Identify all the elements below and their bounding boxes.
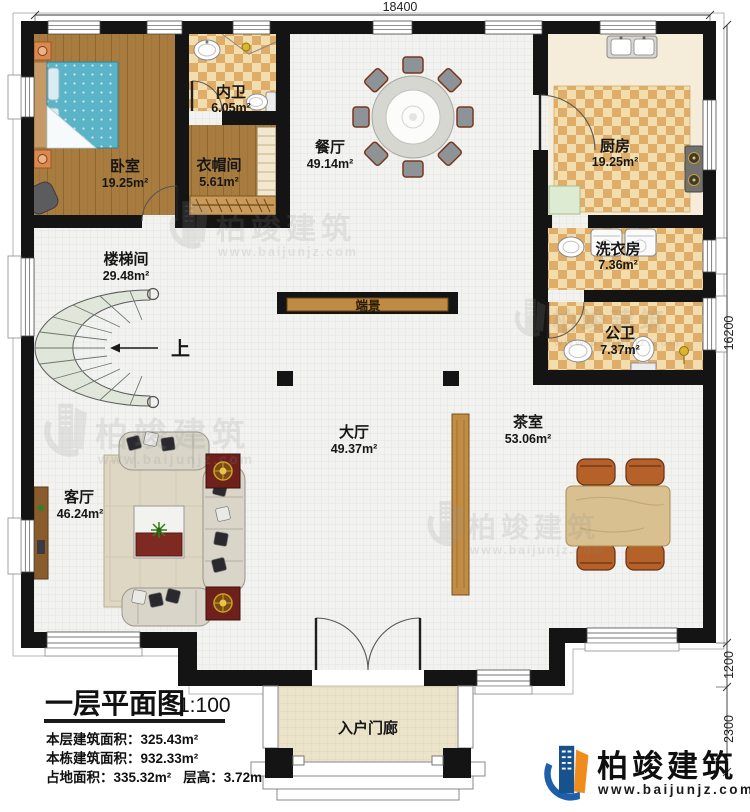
dim-right-step: 1200 [722,651,736,679]
label-feature-wall: 端景 [355,298,381,313]
plan-title: 一层平面图 [45,688,185,719]
column [277,371,293,386]
tv-cabinet [34,487,48,579]
room-label-tea-room: 茶室 [513,413,543,431]
room-area-kitchen: 19.25m² [592,155,639,169]
pillow [48,68,59,100]
bed-headboard [34,62,47,148]
title-underline [44,719,225,723]
room-area-ensuite: 6.05m² [211,101,251,115]
brand-url: www.baijunjz.com [597,782,750,797]
porch-pillar [443,748,471,778]
room-label-ensuite: 内卫 [216,83,246,101]
room-area-public-bath: 7.37m² [600,343,640,357]
room-label-stairwell: 楼梯间 [103,250,148,268]
room-label-laundry: 洗衣房 [595,240,640,258]
label-entry-porch: 入户门廊 [338,719,398,737]
room-area-stairwell: 29.48m² [103,269,150,283]
svg-text:柏竣建筑: 柏竣建筑 [216,212,356,246]
svg-text:柏竣建筑: 柏竣建筑 [468,511,600,543]
shelving-unit [257,127,276,197]
svg-text:www.baijunjz.com: www.baijunjz.com [217,245,358,259]
stat-footprint-height: 占地面积：335.32m²层高：3.72m [46,769,262,785]
plan-scale: 1:100 [178,694,231,717]
room-area-hall: 49.37m² [331,442,378,456]
room-label-living-room: 客厅 [63,488,94,506]
svg-text:www.baijunjz.com: www.baijunjz.com [97,452,255,467]
room-label-hall: 大厅 [339,423,369,441]
dim-right-total: 16200 [722,316,736,351]
room-area-dining: 49.14m² [307,157,354,171]
room-area-bedroom: 19.25m² [102,176,149,190]
room-label-cloakroom: 衣帽间 [196,156,241,174]
shower-drain [242,43,250,51]
column [443,371,459,386]
room-area-tea-room: 53.06m² [505,432,552,446]
room-label-bedroom: 卧室 [110,157,140,175]
stat-floor-area: 本层建筑面积：325.43m² [46,731,199,747]
svg-text:www.baijunjz.com: www.baijunjz.com [469,543,606,557]
room-area-cloakroom: 5.61m² [199,175,239,189]
wood-screen [452,414,469,595]
toilet-tank [631,363,656,371]
dim-top: 18400 [383,0,418,14]
room-label-dining: 餐厅 [315,138,345,156]
floor-plan-page: 柏竣建筑 www.baijunjz.com 柏竣建筑 www.baijunjz.… [0,0,750,812]
svg-text:柏竣建筑: 柏竣建筑 [95,416,251,453]
floor-plan-drawing: 柏竣建筑 www.baijunjz.com 柏竣建筑 www.baijunjz.… [0,0,750,812]
dim-right-porch: 2300 [722,715,736,743]
stat-building-area: 本栋建筑面积：932.33m² [46,750,199,766]
porch-step [277,789,459,800]
kitchen-cabinet [549,186,580,214]
porch-step [263,776,473,789]
room-area-laundry: 7.36m² [598,258,638,272]
label-stairs-up: 上 [171,338,190,360]
laundry-sink [558,237,584,257]
room-area-living-room: 46.24m² [57,507,104,521]
hall-elements [452,414,469,595]
room-label-kitchen: 厨房 [600,137,630,155]
porch-pillar [265,748,293,778]
room-label-public-bath: 公卫 [605,325,635,342]
brand-name: 柏竣建筑 [597,749,737,784]
